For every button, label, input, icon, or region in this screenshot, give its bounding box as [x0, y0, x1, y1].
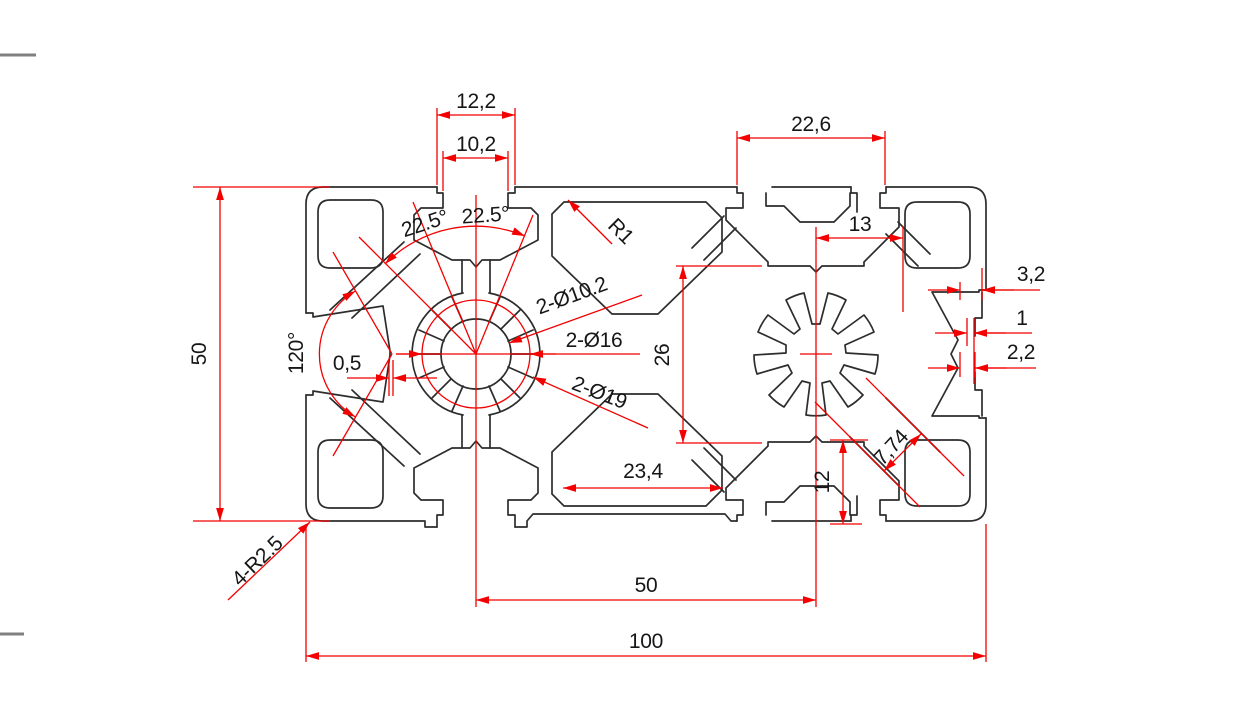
dim-fillet-r1-label: R1 [603, 214, 638, 249]
dim-top-right-slot-span-label: 22,6 [791, 113, 831, 136]
dim-lip-step-large-label: 2,2 [1007, 341, 1035, 364]
dim-bottom-cavity-width-label: 23,4 [623, 460, 663, 483]
dim-bore-small-label: 2-Ø10.2 [533, 272, 610, 319]
dim-profile-height-label: 50 [188, 343, 211, 366]
dim-wall-thickness-label: 3,2 [1017, 263, 1045, 286]
dim-bore-mid-label: 2-Ø16 [566, 329, 623, 352]
dim-bore-large-label: 2-Ø19 [569, 372, 630, 414]
dim-slot-mouth-inner-label: 10,2 [456, 133, 496, 156]
profile-drawing: 12,2 10,2 22,6 13 26 23,4 12 7,74 3,2 1 … [0, 0, 1246, 720]
dim-fan-angle-right-label: 22.5° [461, 202, 510, 228]
dim-corner-fillets-label: 4-R2.5 [227, 532, 287, 591]
frame-marks [0, 55, 36, 634]
drawing-sheet: 12,2 10,2 22,6 13 26 23,4 12 7,74 3,2 1 … [0, 0, 1246, 720]
dim-left-pocket-angle-label: 120° [285, 332, 308, 374]
dim-bore-chamber-height-label: 26 [651, 344, 674, 367]
dim-center-to-wall-label: 13 [849, 213, 872, 236]
dim-profile-width-label: 100 [629, 630, 663, 653]
dim-center-spacing-label: 50 [635, 574, 658, 597]
dim-vertex-flat-label: 0,5 [333, 352, 361, 375]
dim-slot-mouth-outer-label: 12,2 [456, 90, 496, 113]
dim-lip-step-small-label: 1 [1016, 307, 1027, 330]
dimension-lines [220, 115, 1040, 656]
dim-bottom-edge-step-label: 12 [811, 471, 834, 494]
